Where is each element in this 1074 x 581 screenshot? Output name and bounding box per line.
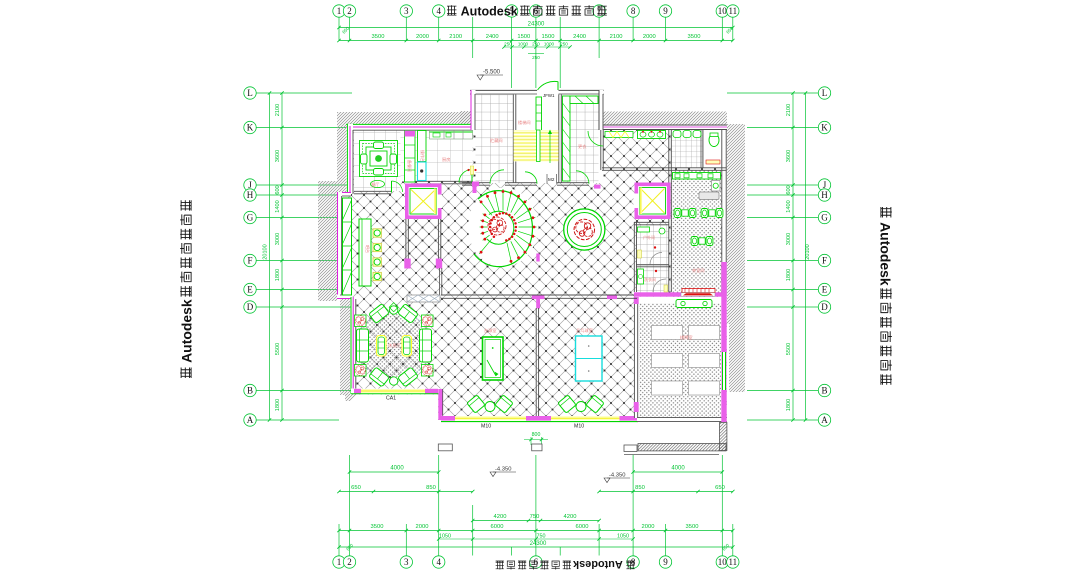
svg-text:20100: 20100 [263, 244, 269, 260]
svg-text:-5.500: -5.500 [483, 70, 501, 76]
svg-text:1800: 1800 [275, 399, 281, 411]
svg-text:M10: M10 [481, 424, 491, 430]
svg-text:750: 750 [530, 514, 540, 520]
svg-text:650: 650 [351, 485, 361, 491]
svg-text:2: 2 [347, 557, 352, 567]
svg-text:1: 1 [337, 6, 342, 16]
svg-text:Autodesk: Autodesk [572, 558, 623, 570]
svg-text:E: E [822, 285, 828, 295]
svg-text:2000: 2000 [642, 524, 655, 530]
svg-text:D: D [821, 302, 828, 312]
svg-text:H: H [821, 190, 828, 200]
svg-text:K: K [247, 123, 254, 133]
svg-text:1400: 1400 [786, 200, 792, 212]
svg-text:B: B [247, 386, 253, 396]
svg-text:3500: 3500 [371, 524, 384, 530]
svg-text:贮藏间: 贮藏间 [490, 137, 503, 144]
svg-text:250: 250 [532, 55, 540, 60]
svg-text:600: 600 [786, 185, 792, 194]
svg-text:B: B [821, 386, 827, 396]
svg-text:24300: 24300 [530, 541, 547, 547]
svg-text:M10: M10 [574, 424, 584, 430]
svg-text:3500: 3500 [688, 34, 701, 40]
svg-text:茶室间: 茶室间 [692, 267, 705, 274]
svg-text:CA1: CA1 [386, 396, 396, 402]
svg-text:洗衣间: 洗衣间 [644, 276, 656, 282]
svg-text:650: 650 [345, 542, 354, 551]
svg-text:乒乓球室: 乒乓球室 [576, 327, 593, 334]
svg-text:操作台: 操作台 [420, 150, 426, 162]
svg-text:3500: 3500 [372, 34, 385, 40]
svg-text:-4.350: -4.350 [609, 473, 625, 479]
svg-text:750: 750 [537, 534, 546, 540]
svg-text:2100: 2100 [275, 104, 281, 116]
svg-text:3600: 3600 [786, 150, 792, 162]
svg-text:1050: 1050 [439, 534, 451, 540]
svg-text:1: 1 [337, 557, 342, 567]
svg-text:户外间: 户外间 [643, 234, 655, 240]
svg-text:4200: 4200 [564, 514, 577, 520]
svg-text:250: 250 [532, 42, 540, 47]
svg-text:250: 250 [504, 42, 512, 47]
svg-text:L: L [822, 88, 828, 98]
svg-text:JFW1: JFW1 [543, 93, 555, 98]
svg-text:4200: 4200 [494, 514, 507, 520]
svg-text:6000: 6000 [491, 524, 504, 530]
svg-text:650: 650 [715, 485, 725, 491]
svg-text:台球室: 台球室 [484, 327, 497, 334]
svg-text:7: 7 [597, 6, 602, 16]
svg-text:850: 850 [426, 485, 436, 491]
svg-text:1800: 1800 [786, 399, 792, 411]
svg-text:11: 11 [728, 6, 737, 16]
svg-text:6000: 6000 [576, 524, 589, 530]
svg-text:休息厅: 休息厅 [388, 342, 401, 349]
svg-text:L: L [247, 88, 253, 98]
svg-text:G: G [247, 213, 254, 223]
svg-text:1800: 1800 [275, 269, 281, 281]
svg-text:9: 9 [663, 6, 668, 16]
svg-text:11: 11 [728, 557, 737, 567]
svg-text:2000: 2000 [416, 34, 429, 40]
svg-text:1800: 1800 [786, 269, 792, 281]
svg-text:2100: 2100 [610, 34, 623, 40]
svg-text:2000: 2000 [643, 34, 656, 40]
svg-text:1500: 1500 [542, 34, 555, 40]
svg-text:4: 4 [436, 557, 441, 567]
svg-text:吧台: 吧台 [365, 245, 371, 253]
svg-text:3: 3 [404, 557, 409, 567]
svg-text:2400: 2400 [486, 34, 499, 40]
svg-text:F: F [822, 256, 827, 266]
svg-text:20100: 20100 [805, 244, 811, 260]
svg-text:10: 10 [718, 6, 728, 16]
svg-text:Autodesk: Autodesk [878, 222, 894, 286]
svg-text:棋牌室: 棋牌室 [680, 334, 693, 341]
svg-text:1000: 1000 [544, 42, 555, 47]
svg-text:楼梯间: 楼梯间 [518, 119, 531, 126]
svg-text:餐厅: 餐厅 [371, 181, 379, 188]
svg-text:3000: 3000 [275, 233, 281, 245]
svg-text:-4.350: -4.350 [495, 467, 511, 473]
svg-text:10: 10 [718, 557, 728, 567]
svg-text:2000: 2000 [416, 524, 429, 530]
svg-text:650: 650 [341, 25, 350, 34]
svg-text:备餐间: 备餐间 [407, 160, 413, 172]
svg-text:F: F [247, 256, 252, 266]
svg-text:A: A [247, 415, 254, 425]
svg-text:8: 8 [631, 6, 636, 16]
svg-text:H: H [247, 190, 254, 200]
svg-text:Autodesk: Autodesk [178, 299, 194, 363]
svg-text:M2: M2 [548, 177, 555, 182]
svg-text:3600: 3600 [275, 150, 281, 162]
svg-text:5500: 5500 [786, 343, 792, 355]
svg-text:250: 250 [560, 42, 568, 47]
svg-text:1400: 1400 [275, 200, 281, 212]
svg-text:E: E [247, 285, 253, 295]
svg-text:Autodesk: Autodesk [461, 4, 518, 18]
svg-text:K: K [821, 123, 828, 133]
svg-text:9: 9 [663, 557, 668, 567]
svg-text:850: 850 [635, 485, 645, 491]
svg-text:2: 2 [347, 6, 352, 16]
svg-text:4000: 4000 [671, 466, 685, 472]
svg-text:6: 6 [534, 557, 539, 567]
svg-text:2400: 2400 [573, 34, 586, 40]
svg-text:5500: 5500 [275, 343, 281, 355]
svg-text:2100: 2100 [786, 104, 792, 116]
svg-text:A: A [821, 415, 828, 425]
svg-text:2100: 2100 [449, 34, 462, 40]
svg-text:3: 3 [404, 6, 409, 16]
svg-text:4000: 4000 [390, 466, 404, 472]
svg-text:G: G [821, 213, 828, 223]
svg-text:1000: 1000 [518, 42, 529, 47]
svg-text:D: D [247, 302, 254, 312]
svg-text:4: 4 [436, 6, 441, 16]
svg-text:1500: 1500 [517, 34, 530, 40]
svg-text:800: 800 [532, 432, 541, 438]
svg-text:24300: 24300 [528, 22, 545, 28]
svg-text:厨房: 厨房 [442, 156, 450, 163]
svg-text:1050: 1050 [617, 534, 629, 540]
svg-text:3000: 3000 [786, 233, 792, 245]
svg-text:更衣: 更衣 [578, 143, 587, 150]
svg-text:3500: 3500 [686, 524, 699, 530]
svg-text:600: 600 [275, 185, 281, 194]
